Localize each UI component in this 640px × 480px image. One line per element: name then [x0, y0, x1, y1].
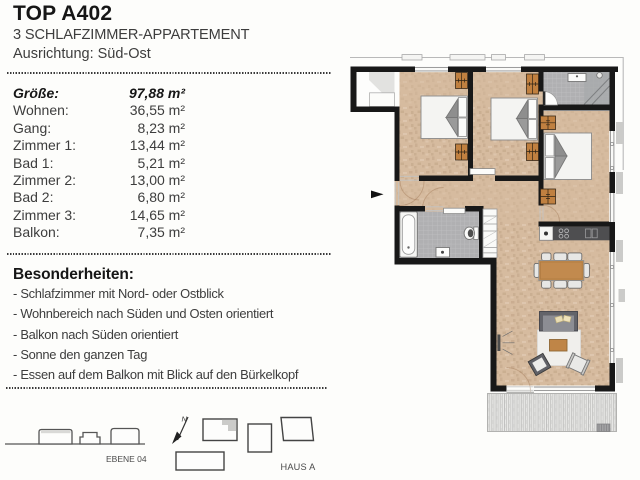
- svg-text:N: N: [182, 415, 188, 424]
- svg-text:EBENE 04: EBENE 04: [106, 454, 147, 464]
- svg-text:HAUS A: HAUS A: [281, 462, 317, 472]
